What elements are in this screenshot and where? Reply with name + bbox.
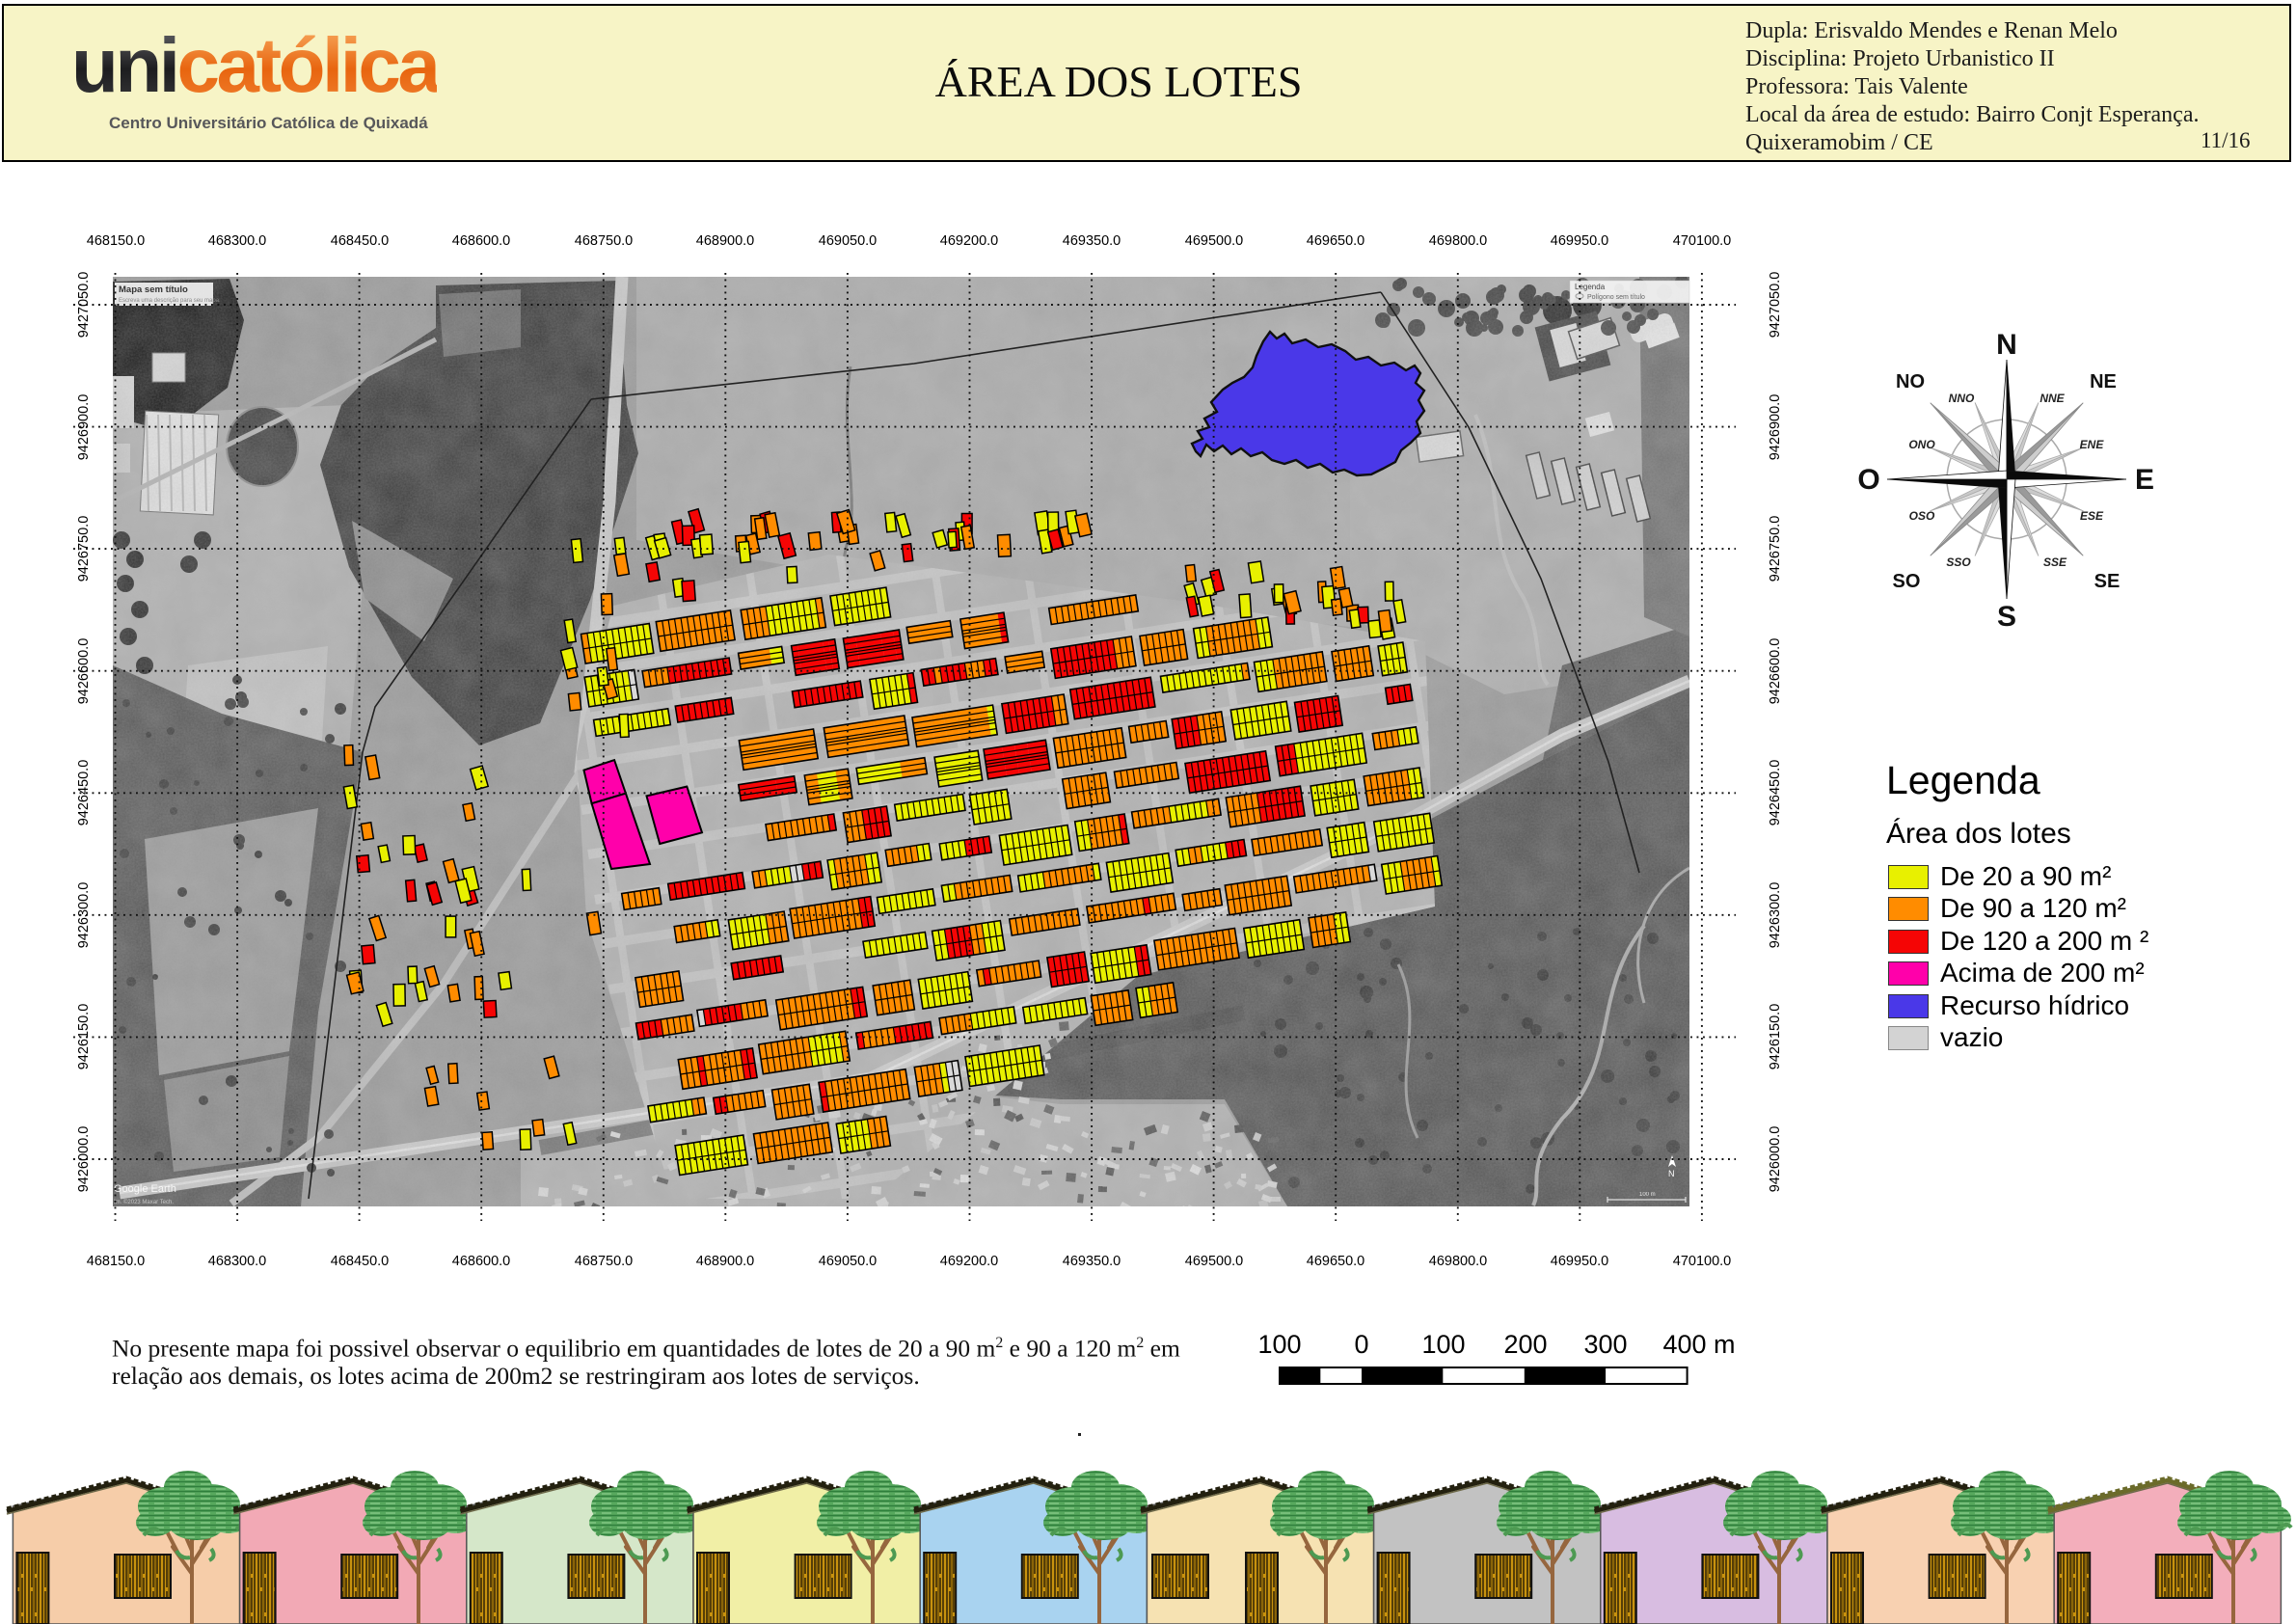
svg-text:470100.0: 470100.0 — [1673, 1254, 1731, 1269]
svg-text:468750.0: 468750.0 — [575, 233, 633, 249]
svg-text:NE: NE — [2090, 371, 2117, 392]
svg-text:469500.0: 469500.0 — [1185, 1254, 1243, 1269]
svg-text:468600.0: 468600.0 — [452, 233, 510, 249]
svg-text:469800.0: 469800.0 — [1429, 1254, 1487, 1269]
svg-text:9426750.0: 9426750.0 — [1768, 516, 1783, 582]
svg-text:SO: SO — [1893, 571, 1921, 592]
svg-text:9426450.0: 9426450.0 — [76, 760, 92, 826]
svg-text:NNE: NNE — [2039, 392, 2065, 405]
svg-text:468150.0: 468150.0 — [87, 233, 145, 249]
svg-text:NNO: NNO — [1949, 392, 1975, 405]
svg-text:9426450.0: 9426450.0 — [1768, 760, 1783, 826]
svg-text:OSO: OSO — [1909, 509, 1935, 523]
svg-text:469800.0: 469800.0 — [1429, 233, 1487, 249]
svg-text:468900.0: 468900.0 — [696, 233, 754, 249]
svg-text:469350.0: 469350.0 — [1063, 1254, 1121, 1269]
svg-text:Escreva uma descrição para seu: Escreva uma descrição para seu mapa. — [119, 298, 221, 304]
svg-text:469050.0: 469050.0 — [819, 233, 877, 249]
svg-text:400 m: 400 m — [1662, 1330, 1735, 1359]
svg-text:469500.0: 469500.0 — [1185, 233, 1243, 249]
svg-text:0: 0 — [1354, 1330, 1368, 1359]
svg-text:468450.0: 468450.0 — [331, 1254, 389, 1269]
svg-text:9426150.0: 9426150.0 — [1768, 1004, 1783, 1070]
svg-text:468300.0: 468300.0 — [208, 1254, 266, 1269]
svg-text:ENE: ENE — [2080, 438, 2105, 451]
svg-text:SE: SE — [2094, 571, 2120, 592]
svg-text:NO: NO — [1896, 371, 1925, 392]
svg-text:100 m: 100 m — [1639, 1192, 1656, 1198]
svg-text:S: S — [1997, 601, 2016, 633]
svg-text:470100.0: 470100.0 — [1673, 233, 1731, 249]
svg-text:468300.0: 468300.0 — [208, 233, 266, 249]
svg-text:469350.0: 469350.0 — [1063, 233, 1121, 249]
svg-text:E: E — [2135, 464, 2154, 496]
svg-text:469650.0: 469650.0 — [1307, 1254, 1364, 1269]
svg-text:9426900.0: 9426900.0 — [1768, 394, 1783, 461]
svg-text:O: O — [1857, 464, 1879, 496]
svg-text:469650.0: 469650.0 — [1307, 233, 1364, 249]
svg-text:468900.0: 468900.0 — [696, 1254, 754, 1269]
svg-text:N: N — [1668, 1169, 1675, 1178]
svg-text:9426150.0: 9426150.0 — [76, 1004, 92, 1070]
svg-text:N: N — [1996, 329, 2017, 361]
svg-text:9427050.0: 9427050.0 — [76, 272, 92, 338]
svg-text:468600.0: 468600.0 — [452, 1254, 510, 1269]
svg-text:Polígono sem título: Polígono sem título — [1587, 294, 1645, 301]
svg-text:9426000.0: 9426000.0 — [1768, 1126, 1783, 1193]
svg-text:468150.0: 468150.0 — [87, 1254, 145, 1269]
svg-text:9426000.0: 9426000.0 — [76, 1126, 92, 1193]
svg-text:100: 100 — [1421, 1330, 1465, 1359]
svg-text:469050.0: 469050.0 — [819, 1254, 877, 1269]
svg-text:9427050.0: 9427050.0 — [1768, 272, 1783, 338]
svg-text:SSO: SSO — [1946, 555, 1971, 569]
svg-text:9426900.0: 9426900.0 — [76, 394, 92, 461]
svg-text:ESE: ESE — [2080, 509, 2104, 523]
svg-text:9426300.0: 9426300.0 — [76, 882, 92, 949]
svg-text:200: 200 — [1503, 1330, 1547, 1359]
svg-text:9426600.0: 9426600.0 — [1768, 638, 1783, 705]
svg-text:469950.0: 469950.0 — [1551, 1254, 1608, 1269]
svg-text:9426300.0: 9426300.0 — [1768, 882, 1783, 949]
svg-text:ONO: ONO — [1908, 438, 1935, 451]
svg-text:468450.0: 468450.0 — [331, 233, 389, 249]
svg-text:SSE: SSE — [2043, 555, 2067, 569]
svg-text:Google Earth: Google Earth — [114, 1183, 176, 1195]
svg-text:100: 100 — [1257, 1330, 1301, 1359]
svg-text:9426750.0: 9426750.0 — [76, 516, 92, 582]
svg-text:Im. ©2023 Maxar Tech.: Im. ©2023 Maxar Tech. — [114, 1199, 174, 1205]
svg-text:300: 300 — [1583, 1330, 1627, 1359]
svg-text:469200.0: 469200.0 — [940, 1254, 998, 1269]
svg-text:469950.0: 469950.0 — [1551, 233, 1608, 249]
svg-text:Mapa sem título: Mapa sem título — [119, 284, 188, 295]
svg-text:469200.0: 469200.0 — [940, 233, 998, 249]
svg-text:9426600.0: 9426600.0 — [76, 638, 92, 705]
svg-text:468750.0: 468750.0 — [575, 1254, 633, 1269]
